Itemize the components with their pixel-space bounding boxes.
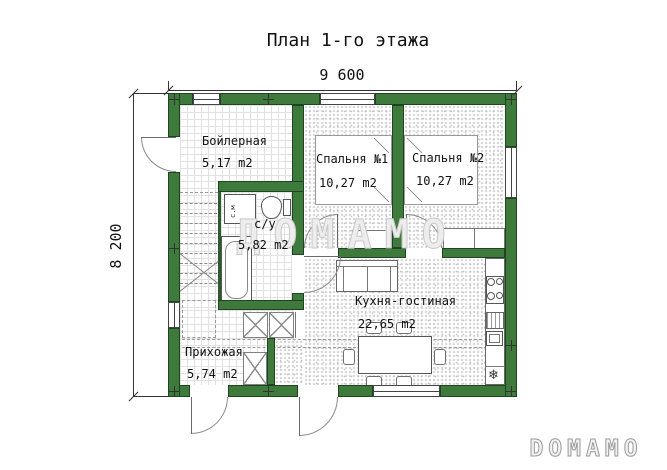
window [168, 302, 180, 328]
stair-tread [180, 263, 217, 264]
room-label-kitchen-living: Кухня-гостиная [355, 294, 456, 308]
domamo-logo: DOMAMO [508, 436, 664, 462]
room-area-hallway: 5,74 m2 [187, 367, 238, 381]
bedroom1-door-leaf [337, 214, 338, 248]
extension-line [133, 93, 169, 94]
closet-cell [243, 352, 267, 385]
stove-burner [496, 292, 503, 299]
stair-landing [182, 300, 216, 338]
dishwasher [486, 312, 504, 329]
wall-segment [338, 248, 406, 258]
extension-line [133, 396, 169, 397]
wall-segment [267, 338, 275, 385]
room-label-boiler: Бойлерная [202, 134, 267, 148]
toilet-tank [283, 199, 291, 216]
sofa-armrest-line [390, 266, 391, 291]
stair-tread [180, 243, 217, 244]
stair-tread [180, 223, 217, 224]
axis-mark [169, 94, 180, 105]
axis-mark [263, 386, 274, 397]
window [373, 385, 440, 397]
wall-segment [168, 172, 180, 302]
washing-machine-label: с.м [229, 205, 237, 218]
window [320, 93, 375, 105]
room-area-bathroom: 5,82 m2 [238, 238, 289, 252]
window [505, 147, 517, 198]
room-area-bedroom2: 10,27 m2 [416, 174, 474, 188]
pillow-icon [407, 187, 422, 202]
room-label-bedroom1: Спальня №1 [316, 152, 388, 166]
room-label-bedroom2: Спальня №2 [412, 151, 484, 165]
wall-segment [218, 300, 304, 310]
closet-partition [295, 312, 296, 338]
hallway-door-arc [191, 397, 228, 434]
counter-divider [485, 366, 505, 367]
ceiling-dash-line [182, 339, 482, 340]
wall-segment [292, 105, 304, 255]
room-area-boiler: 5,17 m2 [202, 156, 253, 170]
bathroom-door-leaf [304, 256, 341, 257]
stair-tread [180, 213, 217, 214]
sofa-seat-divider [367, 266, 368, 291]
bedroom2-door-leaf [406, 214, 407, 248]
stair-tread [180, 283, 217, 284]
stair-tread [180, 253, 217, 254]
room-label-bathroom: с/у [254, 217, 276, 231]
pillow-icon [374, 138, 389, 153]
axis-mark [169, 386, 180, 397]
axis-mark [506, 386, 517, 397]
floor-plan-canvas: План 1-го этажа [0, 0, 667, 470]
fridge-snowflake-icon: ❄ [488, 368, 499, 383]
dimension-line-top [168, 90, 517, 91]
wall-segment [218, 181, 304, 192]
hallway-door-leaf [191, 397, 192, 434]
entrance-door-leaf [141, 137, 176, 138]
kitchen-sink-bowl [489, 334, 500, 343]
stove-burner [487, 278, 495, 286]
bathroom-partition-wall [218, 192, 221, 300]
wall-segment [338, 385, 373, 397]
stove-burner [487, 292, 495, 300]
boiler-passage-dash [180, 192, 218, 193]
axis-mark [506, 340, 517, 351]
dimension-line-left [133, 93, 134, 397]
stair-tread [180, 233, 217, 234]
dining-table [358, 336, 432, 374]
room-area-bedroom1: 10,27 m2 [319, 176, 377, 190]
entrance-door-arc [141, 137, 176, 172]
axis-mark [506, 94, 517, 105]
stair-tread [180, 273, 217, 274]
axis-mark [263, 94, 274, 105]
wardrobe-divider [474, 229, 475, 248]
closet-cell [269, 312, 294, 338]
terrace-door-arc [299, 397, 338, 436]
terrace-door-leaf [299, 397, 300, 436]
room-area-kitchen-living: 22,65 m2 [358, 317, 416, 331]
stair-tread [180, 203, 217, 204]
wall-segment [375, 93, 517, 105]
wall-segment [392, 105, 404, 248]
chair [343, 349, 355, 365]
wall-segment [505, 198, 517, 397]
chair [434, 349, 446, 365]
room-label-hallway: Прихожая [185, 345, 243, 359]
dimension-width-label: 9 600 [297, 66, 387, 84]
dimension-height-label: 8 200 [107, 216, 125, 276]
sofa-armrest-line [343, 266, 344, 291]
page-title: План 1-го этажа [198, 30, 498, 51]
axis-mark [169, 243, 180, 254]
window [193, 93, 220, 105]
stove-burner [496, 278, 503, 285]
dresser [352, 230, 392, 249]
wall-segment [442, 248, 505, 258]
closet-cell [243, 312, 268, 338]
